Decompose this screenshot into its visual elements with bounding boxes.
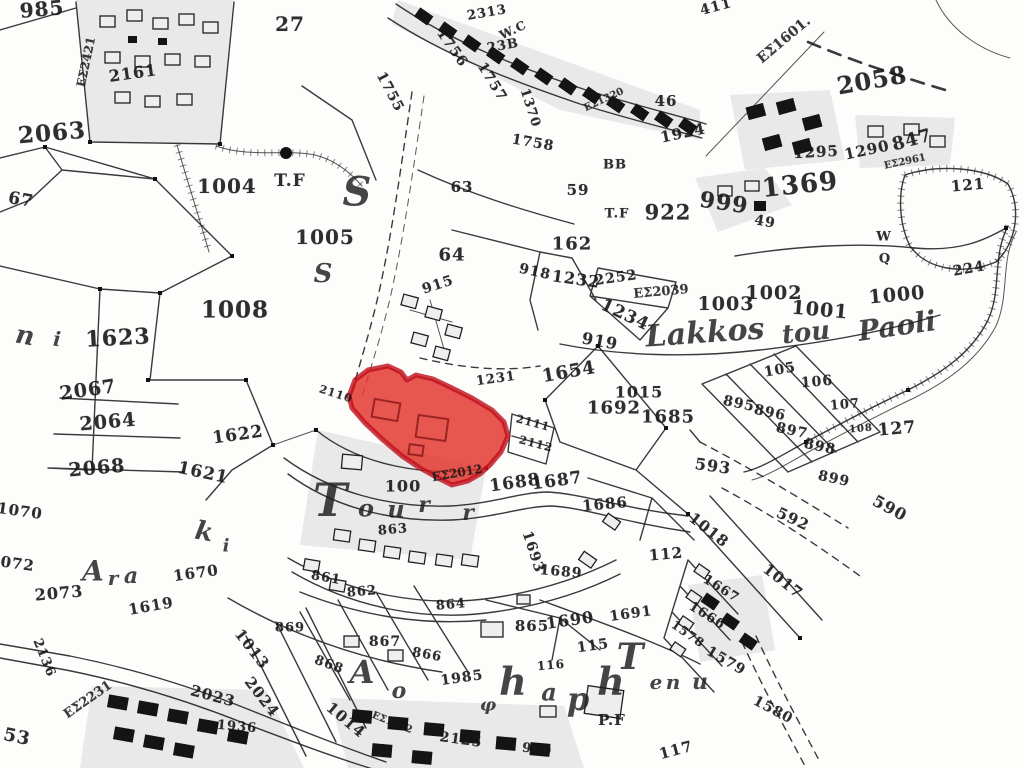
cadastral-map-canvas: 985ΕΣ24212161271004T.F100567175517561757… <box>0 0 1024 768</box>
survey-nodes <box>43 140 1008 640</box>
landmark-blob <box>280 147 292 159</box>
map-linework <box>0 0 1024 768</box>
buildings-layer <box>100 7 945 765</box>
hatched-edges <box>177 145 1016 442</box>
urban-block-shading <box>76 0 955 768</box>
